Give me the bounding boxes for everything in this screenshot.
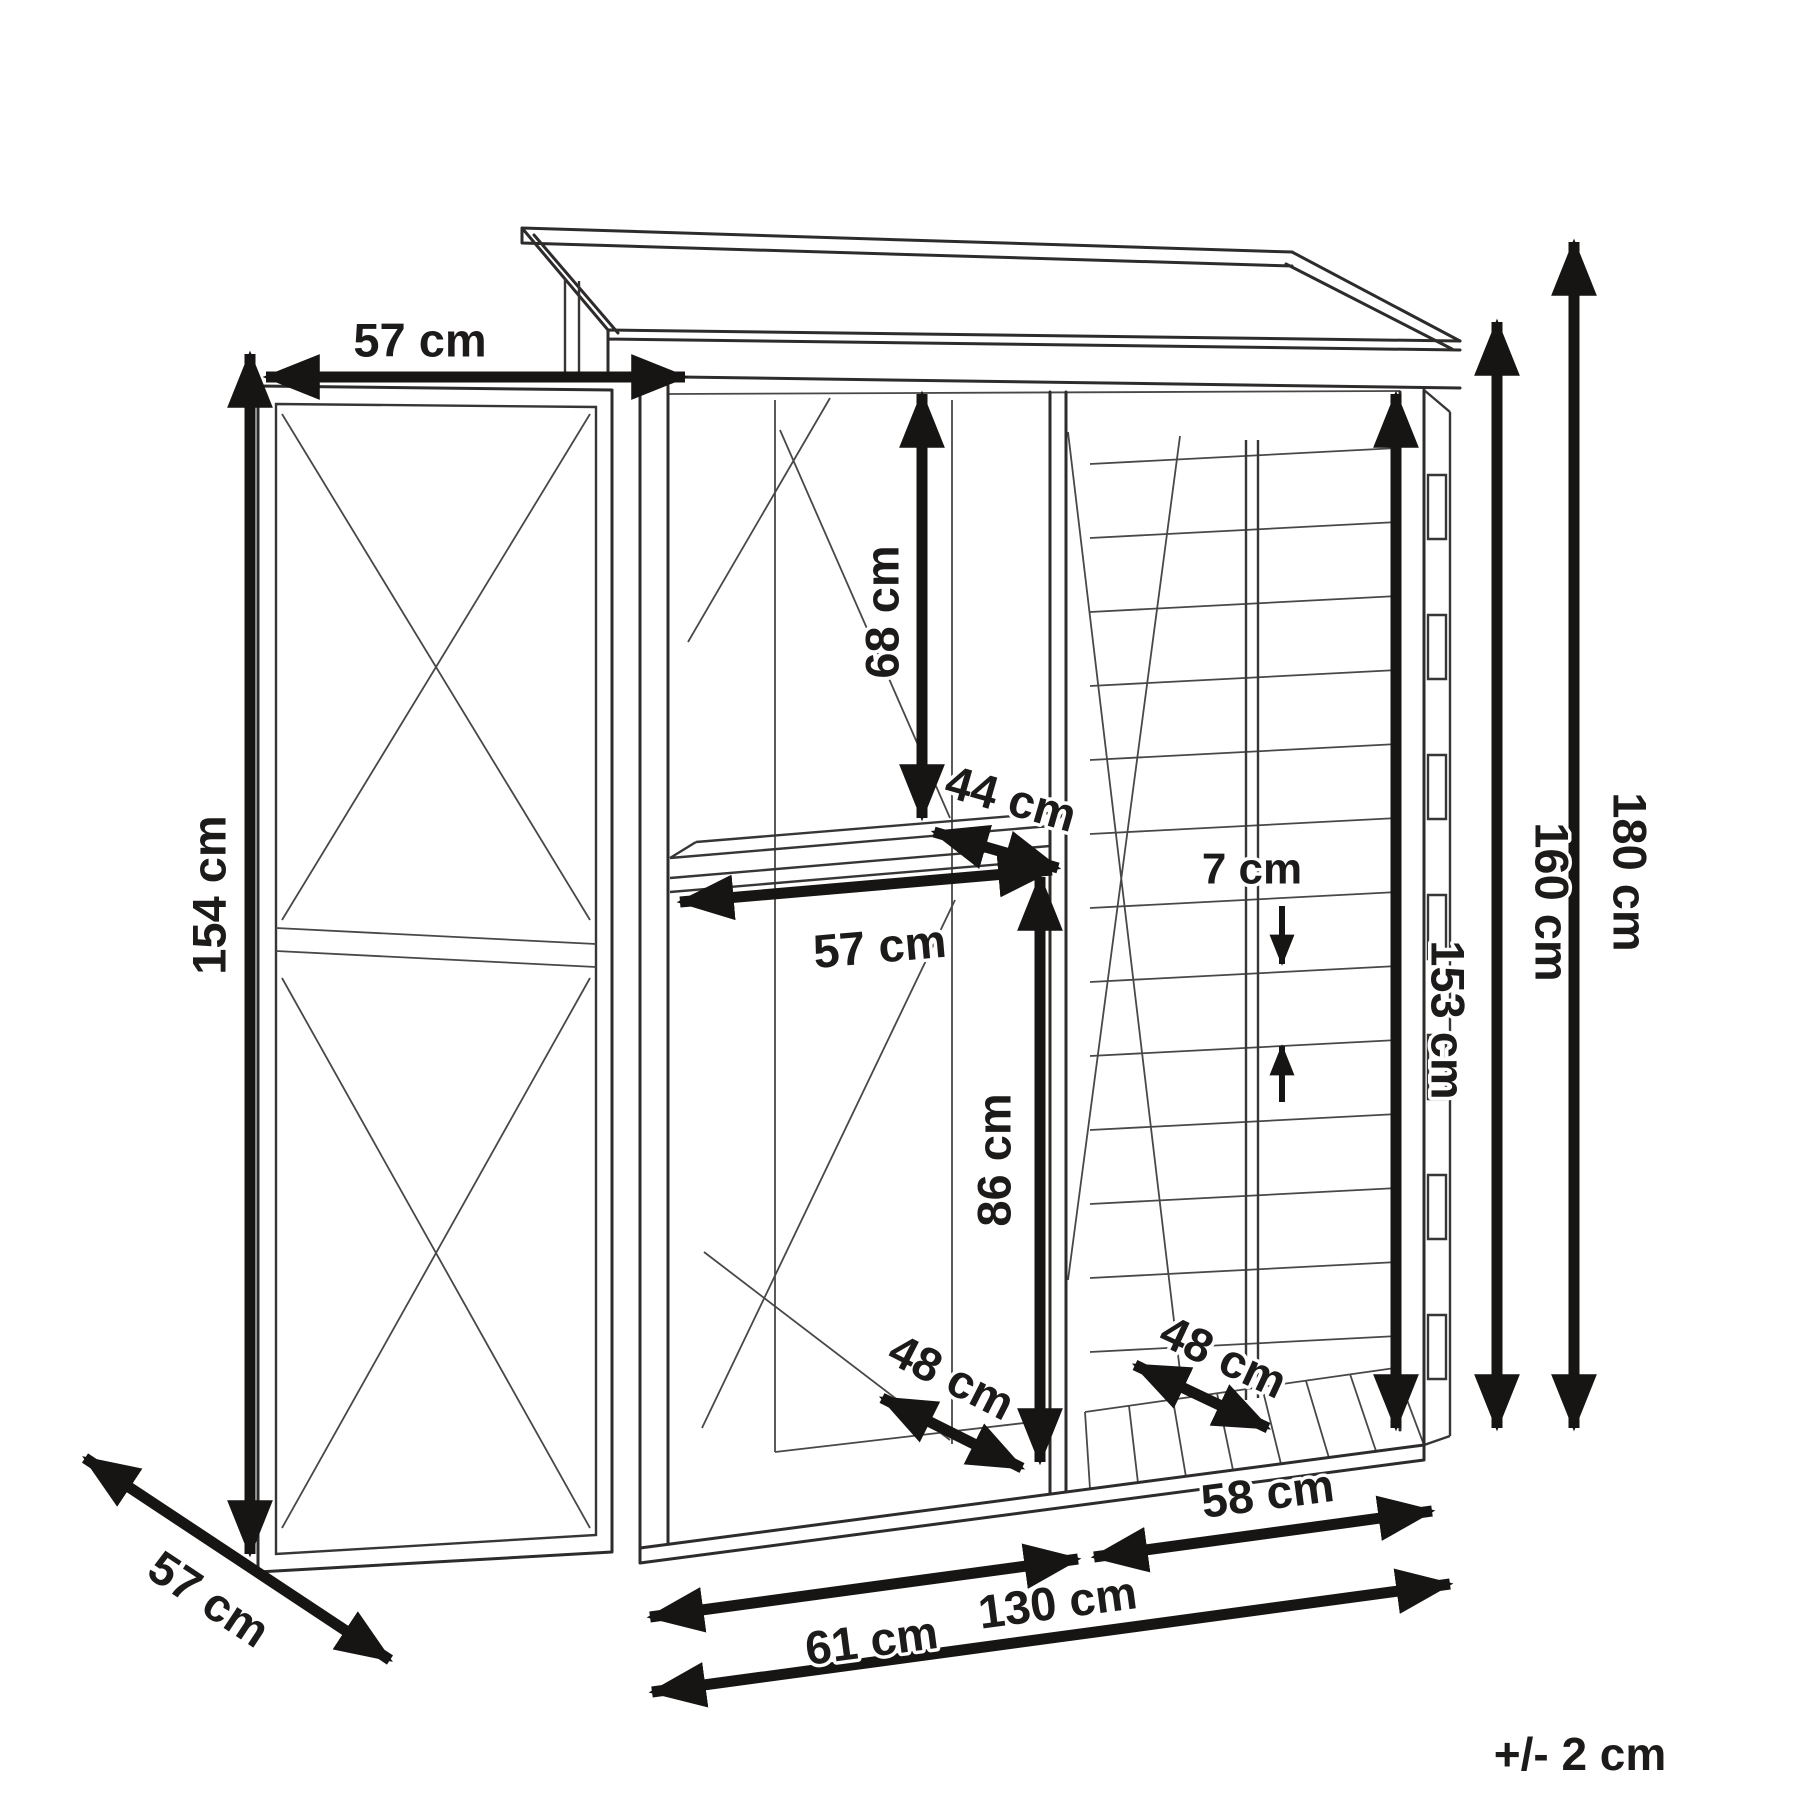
ceiling-line [668,391,1400,394]
dim-label-door-width: 57 cm [353,313,486,366]
shed-dimension-diagram: 57 cm 154 cm 57 cm 68 cm 44 cm 57 cm 86 … [0,0,1800,1800]
dim-label-log-width: 58 cm [1198,1458,1337,1528]
door-inner-frame [276,404,596,1554]
dim-label-slat-gap: 7 cm [1202,845,1302,894]
right-corner-post [1400,390,1424,1445]
diagram-canvas: 57 cm 154 cm 57 cm 68 cm 44 cm 57 cm 86 … [0,0,1800,1800]
dim-label-door-height: 154 cm [182,815,235,974]
partition-post [1050,392,1066,1494]
door-jamb-post [640,382,668,1548]
dim-label-shelf-clearance: 68 cm [855,545,908,678]
tool-floor-back-edge [775,1420,1050,1452]
fascia-board [608,330,1460,388]
door-cross-braces [282,414,590,1528]
right-wall-slat-ends [1424,390,1450,1445]
firewood-mid-post [1246,440,1258,1400]
dimension-labels: 57 cm 154 cm 57 cm 68 cm 44 cm 57 cm 86 … [139,313,1666,1780]
tolerance-note: +/- 2 cm [1494,1728,1667,1780]
door-panel [258,386,612,1572]
dim-label-total-height: 180 cm [1604,792,1657,951]
dim-label-tool-width: 61 cm [802,1605,941,1675]
dim-label-eaves-height: 160 cm [1526,822,1579,981]
dim-label-shelf-width: 57 cm [811,914,948,978]
door-mid-rail [276,928,596,967]
firewood-back-slats [1090,448,1398,1352]
dim-label-interior-height: 153 cm [1422,940,1475,1099]
dim-label-under-shelf: 86 cm [967,1093,1020,1226]
